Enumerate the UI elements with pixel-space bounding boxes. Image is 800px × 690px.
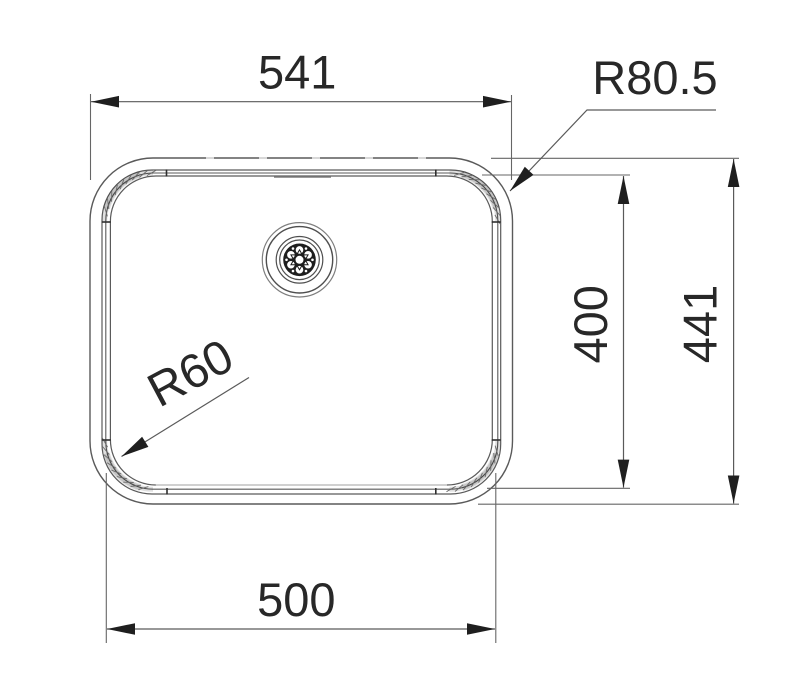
svg-text:541: 541 (258, 45, 336, 98)
svg-text:R60: R60 (139, 330, 242, 418)
svg-text:500: 500 (257, 573, 335, 626)
svg-text:R80.5: R80.5 (592, 51, 717, 104)
svg-text:400: 400 (564, 285, 617, 363)
svg-text:441: 441 (674, 285, 727, 363)
